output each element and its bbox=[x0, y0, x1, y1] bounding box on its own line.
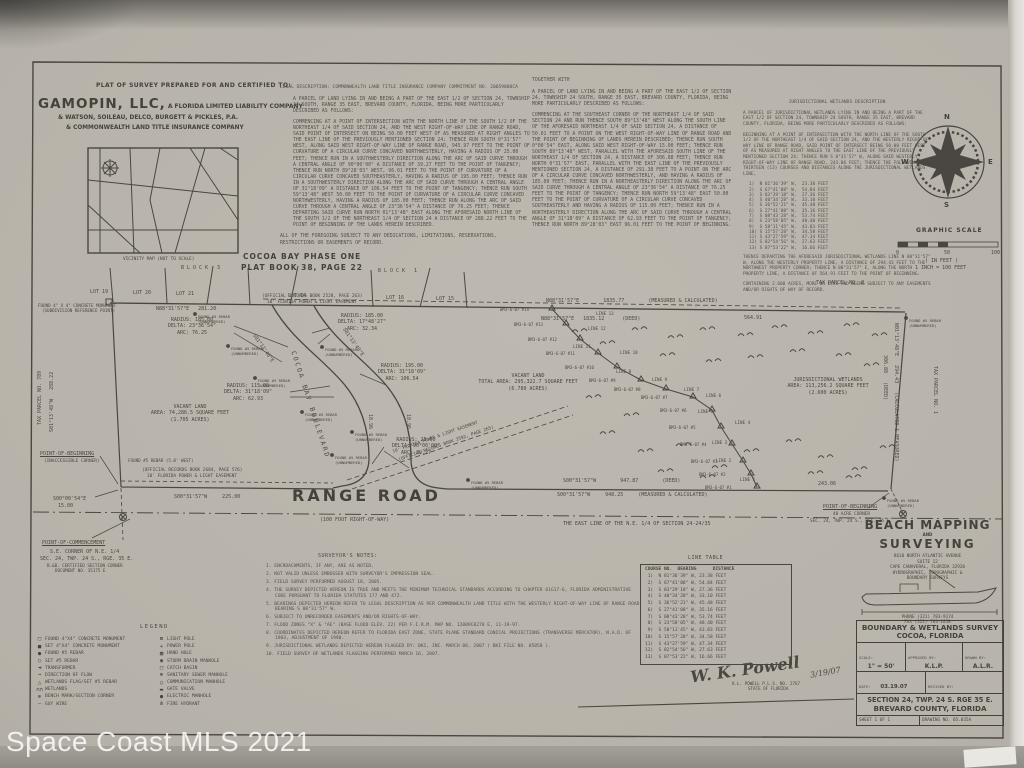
scanned-survey-photo: { "watermark": "Space Coast MLS 2021", "… bbox=[0, 0, 1024, 768]
plat-label: S.E. CORNER OF N.E. 1/4 bbox=[50, 549, 119, 555]
plat-label: 243.06 bbox=[818, 481, 836, 487]
plat-label: (OFFICIAL RECORDS BOOK 2528, PAGE 263) bbox=[262, 294, 362, 300]
rebar-note: FOUND #5 REBAR(UNNUMBERED) bbox=[909, 319, 941, 328]
compass-w: W bbox=[901, 158, 909, 167]
plat-label: 564.91 bbox=[744, 315, 762, 321]
plat-label: POINT-OF-COMMENCEMENT bbox=[42, 540, 105, 546]
compass-n: N bbox=[944, 113, 950, 122]
wetland-line-label: LINE 10 bbox=[620, 350, 638, 355]
wetland-line-label: LINE 4 bbox=[735, 420, 750, 425]
lot-label: LOT 16 bbox=[386, 295, 404, 301]
plat-label: (SUBDIVISION REFERENCE POINT) bbox=[42, 308, 115, 313]
plat-data-block: VACANT LANDTOTAL AREA: 295,322.7 SQUARE … bbox=[443, 373, 613, 392]
wetland-line-label: LINE 7 bbox=[684, 387, 699, 392]
lot-label: LOT 19 bbox=[90, 289, 108, 295]
block-1-label: BLOCK 1 bbox=[378, 268, 420, 274]
plat-label: N88°31'57"E 281.20 bbox=[156, 306, 216, 312]
wetland-line-label: LINE 2 bbox=[716, 458, 731, 463]
graphic-scale-title: GRAPHIC SCALE bbox=[916, 227, 983, 235]
plat-label: DOCUMENT NO. 35175 E bbox=[55, 568, 105, 573]
rebar-note: FOUND #5 REBAR(UNNUMBERED) bbox=[258, 379, 290, 388]
rebar-note: FOUND #5 REBAR(UNNUMBERED) bbox=[231, 347, 263, 356]
wetland-flag-label: BM3-6-07 #8 bbox=[614, 387, 641, 392]
wetland-line-label: LINE 13 bbox=[596, 311, 614, 316]
wetland-flag-label: BM3-6-07 #10 bbox=[565, 365, 594, 370]
plat-label: SEC. 24, TWP. 24 S., RGE. 35 E. bbox=[810, 519, 892, 525]
wetland-line-label: LINE 3 bbox=[712, 440, 727, 445]
rebar-note: FOUND #5 REBAR(UNNUMBERED) bbox=[471, 481, 503, 490]
wetland-line-label: LINE 6 bbox=[706, 393, 721, 398]
subdivision-title: COCOA BAY PHASE ONE bbox=[243, 252, 361, 261]
plat-label: S00°31'57"W 948.25 (MEASURED & CALCULATE… bbox=[557, 492, 708, 498]
plat-data-block: JURISDICTIONAL WETLANDSAREA: 113,256.2 S… bbox=[743, 377, 913, 396]
wetland-flag-label: BM3-6-07 #9 bbox=[589, 378, 616, 383]
scale-ratio: 1 INCH = 100 FEET bbox=[915, 265, 966, 271]
plat-label: S00°31'57"W 947.87 (DEED) bbox=[563, 478, 680, 484]
rebar-note: FOUND #5 REBAR(UNNUMBERED) bbox=[305, 413, 337, 422]
plat-label: 40 ACRE CORNER bbox=[833, 512, 870, 518]
rebar-note: FOUND #5 REBAR(UNNUMBERED) bbox=[355, 433, 387, 442]
plat-label: 18.96 bbox=[405, 414, 411, 429]
plat-annotations: N88°31'57"E 281.20N88°31'57"E 1835.77 (M… bbox=[0, 0, 1024, 768]
wetland-flag-label: BM3-6-07 #11 bbox=[546, 351, 575, 356]
plat-label: TAX PARCEL NO. 8 bbox=[816, 280, 864, 286]
plat-label: 10' FLORIDA POWER & LIGHT EASEMENT bbox=[147, 474, 237, 480]
plat-label: SEC. 24, TWP. 24 S., RGE. 35 E. bbox=[40, 556, 133, 562]
range-road-label: RANGE ROAD bbox=[292, 486, 441, 506]
rebar-note: FOUND #5 REBAR(UNNUMBERED) bbox=[325, 348, 357, 357]
plat-label: 18.96 bbox=[367, 414, 373, 429]
rebar-note: FOUND #5 REBAR(UNNUMBERED) bbox=[335, 456, 367, 465]
plat-label: (OFFICIAL RECORDS BOOK 2684, PAGE 576) bbox=[142, 468, 242, 474]
wetland-flag-label: BM3-6-07 #1 bbox=[705, 485, 732, 490]
wetland-line-label: LINE 8 bbox=[616, 369, 631, 374]
rebar-note: FOUND #5 REBAR(UNNUMBERED) bbox=[198, 315, 230, 324]
plat-label: S00°00'54"E bbox=[53, 496, 86, 502]
plat-data-block: RADIUS: 185.00DELTA: 17°48'27"ARC: 32.34 bbox=[277, 313, 447, 332]
plat-label: POINT-OF-BEGINNING bbox=[40, 451, 94, 457]
lot-label: LOT 15 bbox=[436, 296, 454, 302]
plat-label: FOUND #5 REBAR (5.8' WEST) bbox=[128, 458, 194, 463]
plat-label: (100 FOOT RIGHT-OF-WAY) bbox=[320, 517, 389, 523]
lot-label: LOT 14 bbox=[288, 293, 306, 299]
lot-label: LOT 20 bbox=[133, 290, 151, 296]
plat-label: TAX PARCEL NO. 1 bbox=[932, 366, 938, 414]
rebar-note: FOUND #5 REBAR(UNNUMBERED) bbox=[887, 499, 919, 508]
wetland-line-label: LINE 1 bbox=[740, 477, 755, 482]
plat-label: 15.00 bbox=[58, 503, 73, 509]
lot-label: LOT 21 bbox=[176, 291, 194, 297]
scale-0: 0 bbox=[896, 250, 899, 256]
plat-data-block: RADIUS: 115.00DELTA: 31°18'09"ARC: 62.93 bbox=[163, 383, 333, 402]
vicinity-caption: VICINITY MAP (NOT TO SCALE) bbox=[123, 257, 194, 263]
wetland-line-label: LINE 12 bbox=[588, 326, 606, 331]
wetland-line-label: LINE 11 bbox=[573, 344, 591, 349]
plat-label: TAX PARCEL NO. 789 bbox=[37, 371, 43, 425]
plat-label: S01°13'48"W 288.22 bbox=[49, 372, 55, 432]
wetland-flag-label: BM3-6-07 #14 bbox=[500, 307, 529, 312]
wetland-flag-label: BM3-6-07 #7 bbox=[641, 395, 668, 400]
plat-data-block: RADIUS: 185.00DELTA: 23°36'54"ARC: 76.25 bbox=[107, 317, 277, 336]
plat-label: N88°31'57"E 1835.12 (DEED) bbox=[541, 316, 640, 322]
subdivision-plat-book: PLAT BOOK 38, PAGE 22 bbox=[241, 263, 363, 272]
plat-label: POINT-OF-BEGINNING bbox=[823, 504, 877, 510]
block-3-label: BLOCK 3 bbox=[181, 265, 223, 271]
wetland-flag-label: BM3-6-07 #6 bbox=[660, 408, 687, 413]
mls-watermark: Space Coast MLS 2021 bbox=[6, 726, 312, 758]
plat-label: S00°31'57"W 225.00 bbox=[174, 494, 240, 500]
wetland-flag-label: BM3-6-07 #2 bbox=[699, 472, 726, 477]
scale-100: 100 bbox=[991, 250, 1000, 256]
wetland-line-label: LINE 9 bbox=[652, 377, 667, 382]
wetland-flag-label: BM3-6-07 #12 bbox=[528, 337, 557, 342]
compass-s: S bbox=[944, 201, 949, 210]
wetland-flag-label: BM3-6-07 #13 bbox=[514, 322, 543, 327]
scale-50: 50 bbox=[944, 250, 950, 256]
wetland-flag-label: BM3-6-07 #5 bbox=[669, 425, 696, 430]
wetland-flag-label: BM3-6-07 #3 bbox=[691, 459, 718, 464]
plat-data-block: VACANT LANDAREA: 74,286.5 SQUARE FEET(1.… bbox=[105, 404, 275, 423]
wetland-line-label: LINE 5 bbox=[698, 409, 713, 414]
wetland-flag-label: BM3-6-07 #4 bbox=[680, 442, 707, 447]
scale-in-feet: ( IN FEET ) bbox=[925, 258, 958, 264]
plat-label: THE EAST LINE OF THE N.E. 1/4 OF SECTION… bbox=[563, 521, 711, 527]
compass-e: E bbox=[988, 158, 993, 167]
plat-label: (INACCESSIBLE CORNER) bbox=[44, 459, 100, 465]
plat-label: N88°31'57"E 1835.77 (MEASURED & CALCULAT… bbox=[546, 298, 718, 304]
plat-label: 10' FLORIDA POWER & LIGHT EASEMENT bbox=[267, 300, 357, 306]
